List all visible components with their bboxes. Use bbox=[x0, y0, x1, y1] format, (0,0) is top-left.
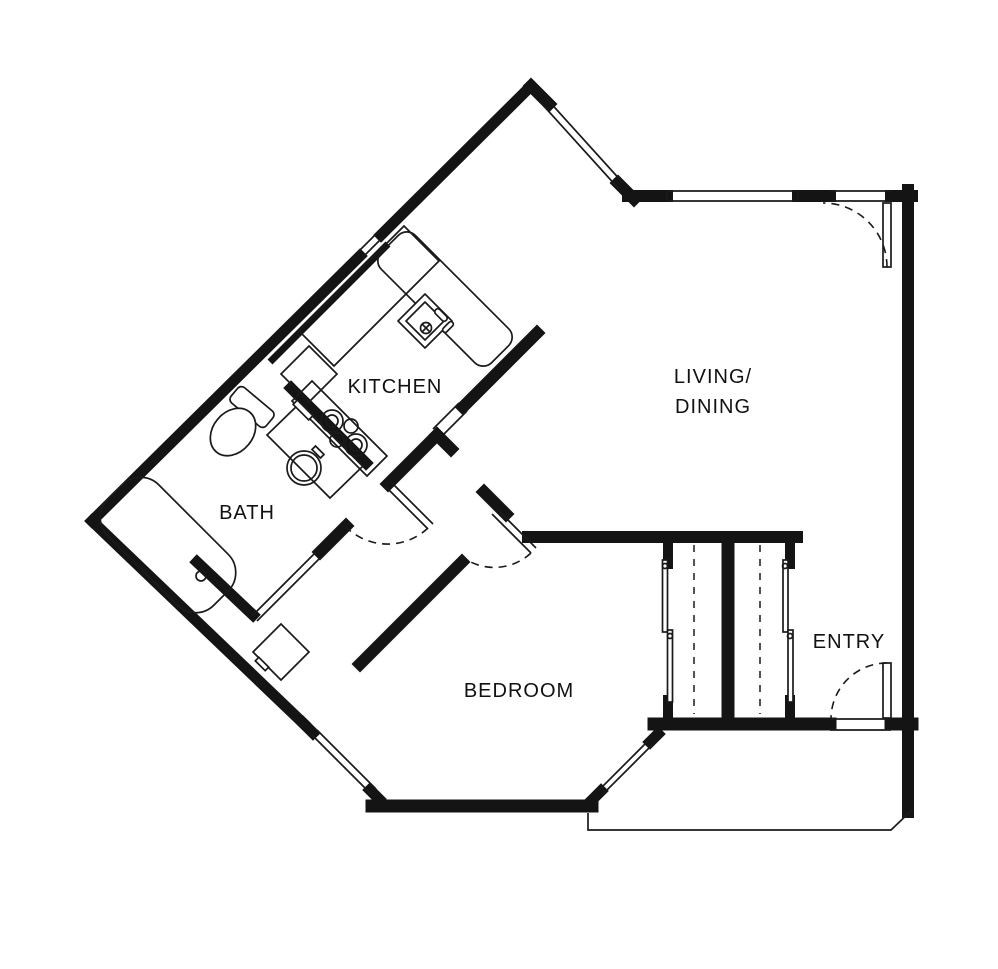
kitchen-label: KITCHEN bbox=[348, 376, 443, 398]
hall-northwest-wall bbox=[388, 435, 437, 484]
bedroom-northwest-wall bbox=[360, 562, 462, 664]
door-swing-arc bbox=[346, 527, 428, 544]
door-leaf bbox=[257, 557, 321, 621]
floor-plan: KITCHEN BATH LIVING/ DINING BEDROOM ENTR… bbox=[0, 0, 998, 969]
southeast-window bbox=[598, 741, 652, 795]
northeast-window bbox=[542, 99, 623, 188]
apex-corner bbox=[531, 86, 549, 104]
door-swing-arc bbox=[823, 203, 887, 267]
vanity-faucet bbox=[312, 446, 324, 458]
bedroom-door-wall bbox=[484, 492, 506, 514]
door-swing-arc bbox=[831, 663, 887, 719]
washer bbox=[253, 624, 309, 680]
bath-laundry-divider bbox=[197, 562, 253, 615]
entry-closet-sliding-door-panel bbox=[788, 630, 793, 702]
door-leaf bbox=[386, 487, 428, 529]
door-leaf bbox=[883, 203, 891, 267]
kitchen-southeast-wall bbox=[463, 333, 537, 407]
laundry-closet bbox=[253, 624, 309, 680]
northeast-corner bbox=[618, 183, 634, 199]
washer-controls bbox=[255, 657, 268, 670]
vanity-sink bbox=[287, 451, 321, 485]
door-leaf bbox=[497, 509, 536, 548]
entry-closet-sliding-door-panel bbox=[783, 560, 788, 632]
kitchen-peninsula-counter bbox=[373, 227, 517, 371]
bedroom-closet-sliding-door-panel bbox=[668, 630, 673, 702]
kitchen-sink bbox=[398, 294, 454, 348]
southeast-window-jamb-upper bbox=[650, 734, 658, 742]
balcony-swing-door bbox=[823, 191, 891, 267]
living-dining-label-line1: LIVING/ bbox=[674, 366, 752, 388]
north-window bbox=[667, 191, 798, 201]
northwest-wall-upper bbox=[381, 86, 531, 235]
southwest-window-jamb-lower bbox=[370, 790, 379, 799]
cased-opening-line bbox=[433, 403, 459, 429]
porch-outline bbox=[588, 809, 913, 830]
hall-entrance-jamb bbox=[437, 435, 451, 449]
bath-door-jamb-wall bbox=[320, 526, 346, 552]
entry-label: ENTRY bbox=[813, 631, 885, 653]
door-leaf bbox=[883, 663, 891, 718]
southeast-window-jamb-lower bbox=[592, 791, 601, 800]
cased-opening-line bbox=[441, 411, 467, 437]
laundry-closet-door bbox=[252, 552, 321, 621]
interior-walls bbox=[197, 333, 797, 724]
southwest-window-jamb-upper bbox=[303, 723, 313, 733]
bath-label: BATH bbox=[219, 502, 275, 524]
door-leaf bbox=[252, 552, 316, 616]
bathroom-swing-door bbox=[346, 482, 433, 544]
door-leaf bbox=[391, 482, 433, 524]
vanity-sink-bowl bbox=[291, 455, 317, 481]
bedroom-label: BEDROOM bbox=[464, 680, 574, 702]
door-swing-arc bbox=[461, 553, 531, 567]
southwest-window bbox=[312, 730, 376, 794]
bedroom-closet-sliding-door-panel bbox=[663, 560, 668, 632]
kitchen-fixtures bbox=[281, 226, 517, 476]
living-dining-label-line2: DINING bbox=[675, 396, 751, 418]
northwest-inner-wall bbox=[270, 244, 388, 362]
entry-swing-door bbox=[830, 663, 891, 730]
